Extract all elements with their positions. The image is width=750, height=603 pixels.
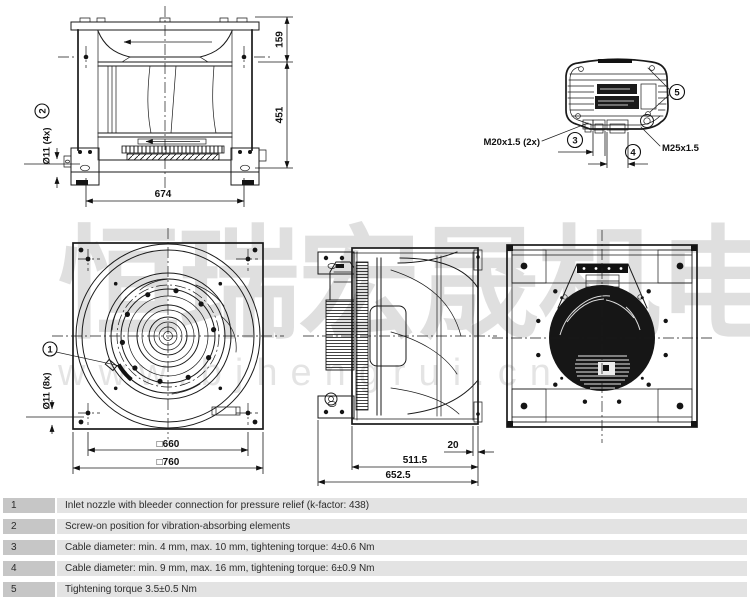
row-text: Tightening torque 3.5±0.5 Nm <box>57 582 747 597</box>
table-row: 4 Cable diameter: min. 9 mm, max. 16 mm,… <box>3 561 747 576</box>
table-row: 1 Inlet nozzle with bleeder connection f… <box>3 498 747 513</box>
notes-table: 1 Inlet nozzle with bleeder connection f… <box>3 498 747 603</box>
cable-glands <box>583 120 628 133</box>
terminal-box-detail-view: 5 M20x1.5 (2x) 3 4 M25x1.5 <box>483 59 699 168</box>
table-row: 3 Cable diameter: min. 4 mm, max. 10 mm,… <box>3 540 747 555</box>
row-number: 2 <box>3 519 55 534</box>
impeller-backplate <box>377 258 381 415</box>
technical-drawing-page: { "watermark": { "cjk": "恒瑞宏晟机电", "url":… <box>0 0 750 602</box>
callout-5: 5 <box>670 85 685 100</box>
dim-451-label: 451 <box>275 106 286 123</box>
dim-511-label: 511.5 <box>403 455 428 466</box>
table-row: 5 Tightening torque 3.5±0.5 Nm <box>3 582 747 597</box>
row-text: Screw-on position for vibration-absorbin… <box>57 519 747 534</box>
front-elevation-view: 159 451 674 2 Ø11 (4x) <box>24 6 293 207</box>
row-number: 4 <box>3 561 55 576</box>
gland-m20-label: M20x1.5 (2x) <box>483 137 540 148</box>
front-view: 1 Ø11 (8x) □660 □760 <box>26 228 284 474</box>
svg-text:4: 4 <box>630 148 636 159</box>
side-view: 20 511.5 652.5 <box>303 248 497 486</box>
row-text: Cable diameter: min. 9 mm, max. 16 mm, t… <box>57 561 747 576</box>
svg-text:3: 3 <box>572 136 577 147</box>
dim-760-label: □760 <box>157 457 180 468</box>
row-number: 5 <box>3 582 55 597</box>
row-number: 3 <box>3 540 55 555</box>
dim-660-label: □660 <box>157 439 180 450</box>
drawing-canvas: 159 451 674 2 Ø11 (4x) <box>0 0 750 495</box>
callout-1: 1 <box>43 342 57 356</box>
dim-652-label: 652.5 <box>385 470 410 481</box>
svg-text:2: 2 <box>38 108 49 113</box>
dim-159-label: 159 <box>275 31 286 48</box>
rear-view <box>492 230 712 443</box>
dim-674-label: 674 <box>155 189 172 200</box>
callout-2: 2 <box>35 104 49 118</box>
table-row: 2 Screw-on position for vibration-absorb… <box>3 519 747 534</box>
nameplate <box>212 407 240 415</box>
callout-3: 3 <box>568 133 583 148</box>
gland-m25-label: M25x1.5 <box>662 143 700 154</box>
hole-label-8x: Ø11 (8x) <box>42 373 53 410</box>
heatsink-hatch <box>122 146 224 153</box>
svg-text:5: 5 <box>674 88 680 99</box>
hole-label-4x: Ø11 (4x) <box>42 128 53 165</box>
row-text: Inlet nozzle with bleeder connection for… <box>57 498 747 513</box>
row-text: Cable diameter: min. 4 mm, max. 10 mm, t… <box>57 540 747 555</box>
dim-20-label: 20 <box>447 440 459 451</box>
row-number: 1 <box>3 498 55 513</box>
svg-text:1: 1 <box>47 345 53 356</box>
motor-heatsink <box>326 300 354 370</box>
